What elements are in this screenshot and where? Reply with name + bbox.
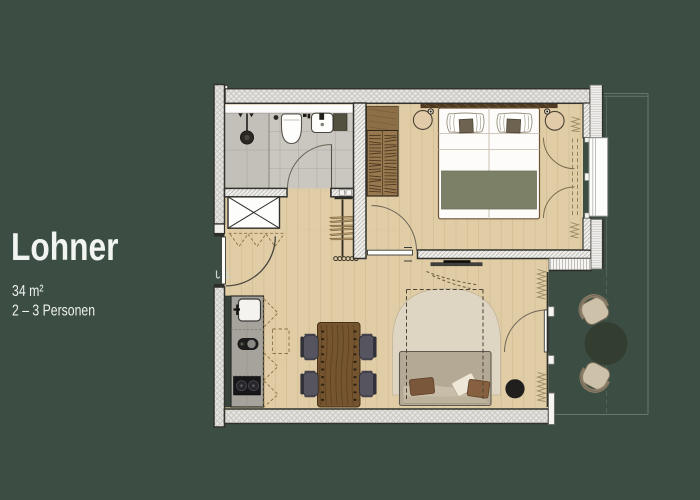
svg-text:34 m²: 34 m²: [12, 283, 44, 300]
svg-text:Lohner: Lohner: [11, 226, 119, 269]
svg-text:2 – 3 Personen: 2 – 3 Personen: [12, 303, 95, 320]
